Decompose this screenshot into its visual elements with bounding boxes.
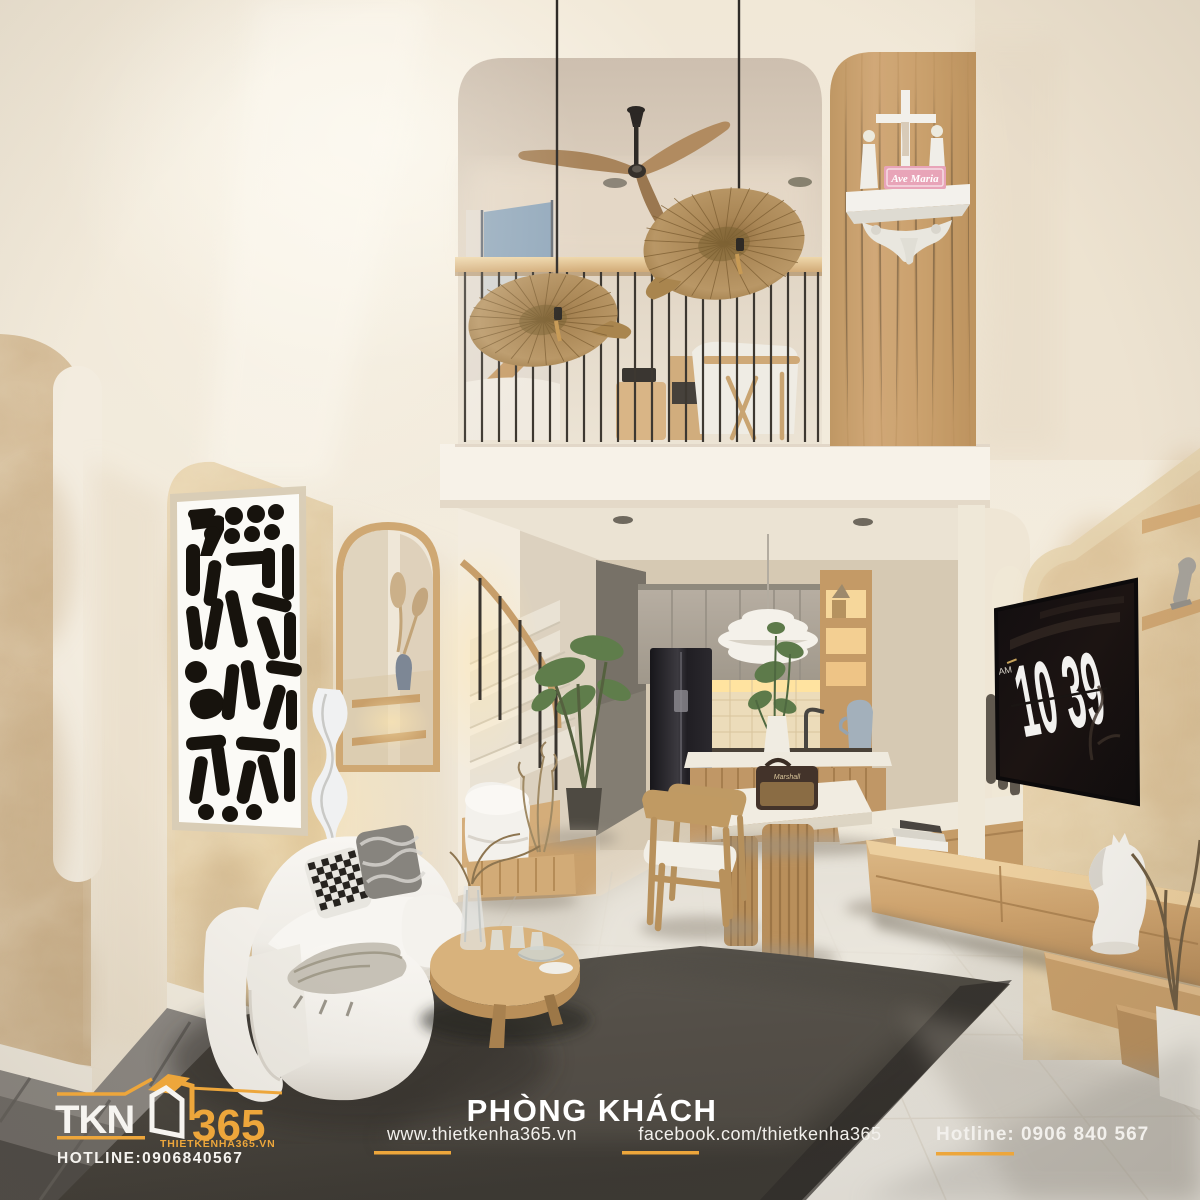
svg-text:Hotline: 0906 840 567: Hotline: 0906 840 567 [936, 1124, 1149, 1145]
svg-text:TKN: TKN [55, 1098, 134, 1142]
svg-text:www.thietkenha365.vn: www.thietkenha365.vn [386, 1124, 577, 1144]
svg-text:PHÒNG KHÁCH: PHÒNG KHÁCH [467, 1092, 718, 1128]
svg-text:facebook.com/thietkenha365: facebook.com/thietkenha365 [638, 1124, 881, 1144]
svg-text:HOTLINE:0906840567: HOTLINE:0906840567 [57, 1150, 243, 1167]
svg-text:THIETKENHA365.VN: THIETKENHA365.VN [160, 1138, 276, 1150]
